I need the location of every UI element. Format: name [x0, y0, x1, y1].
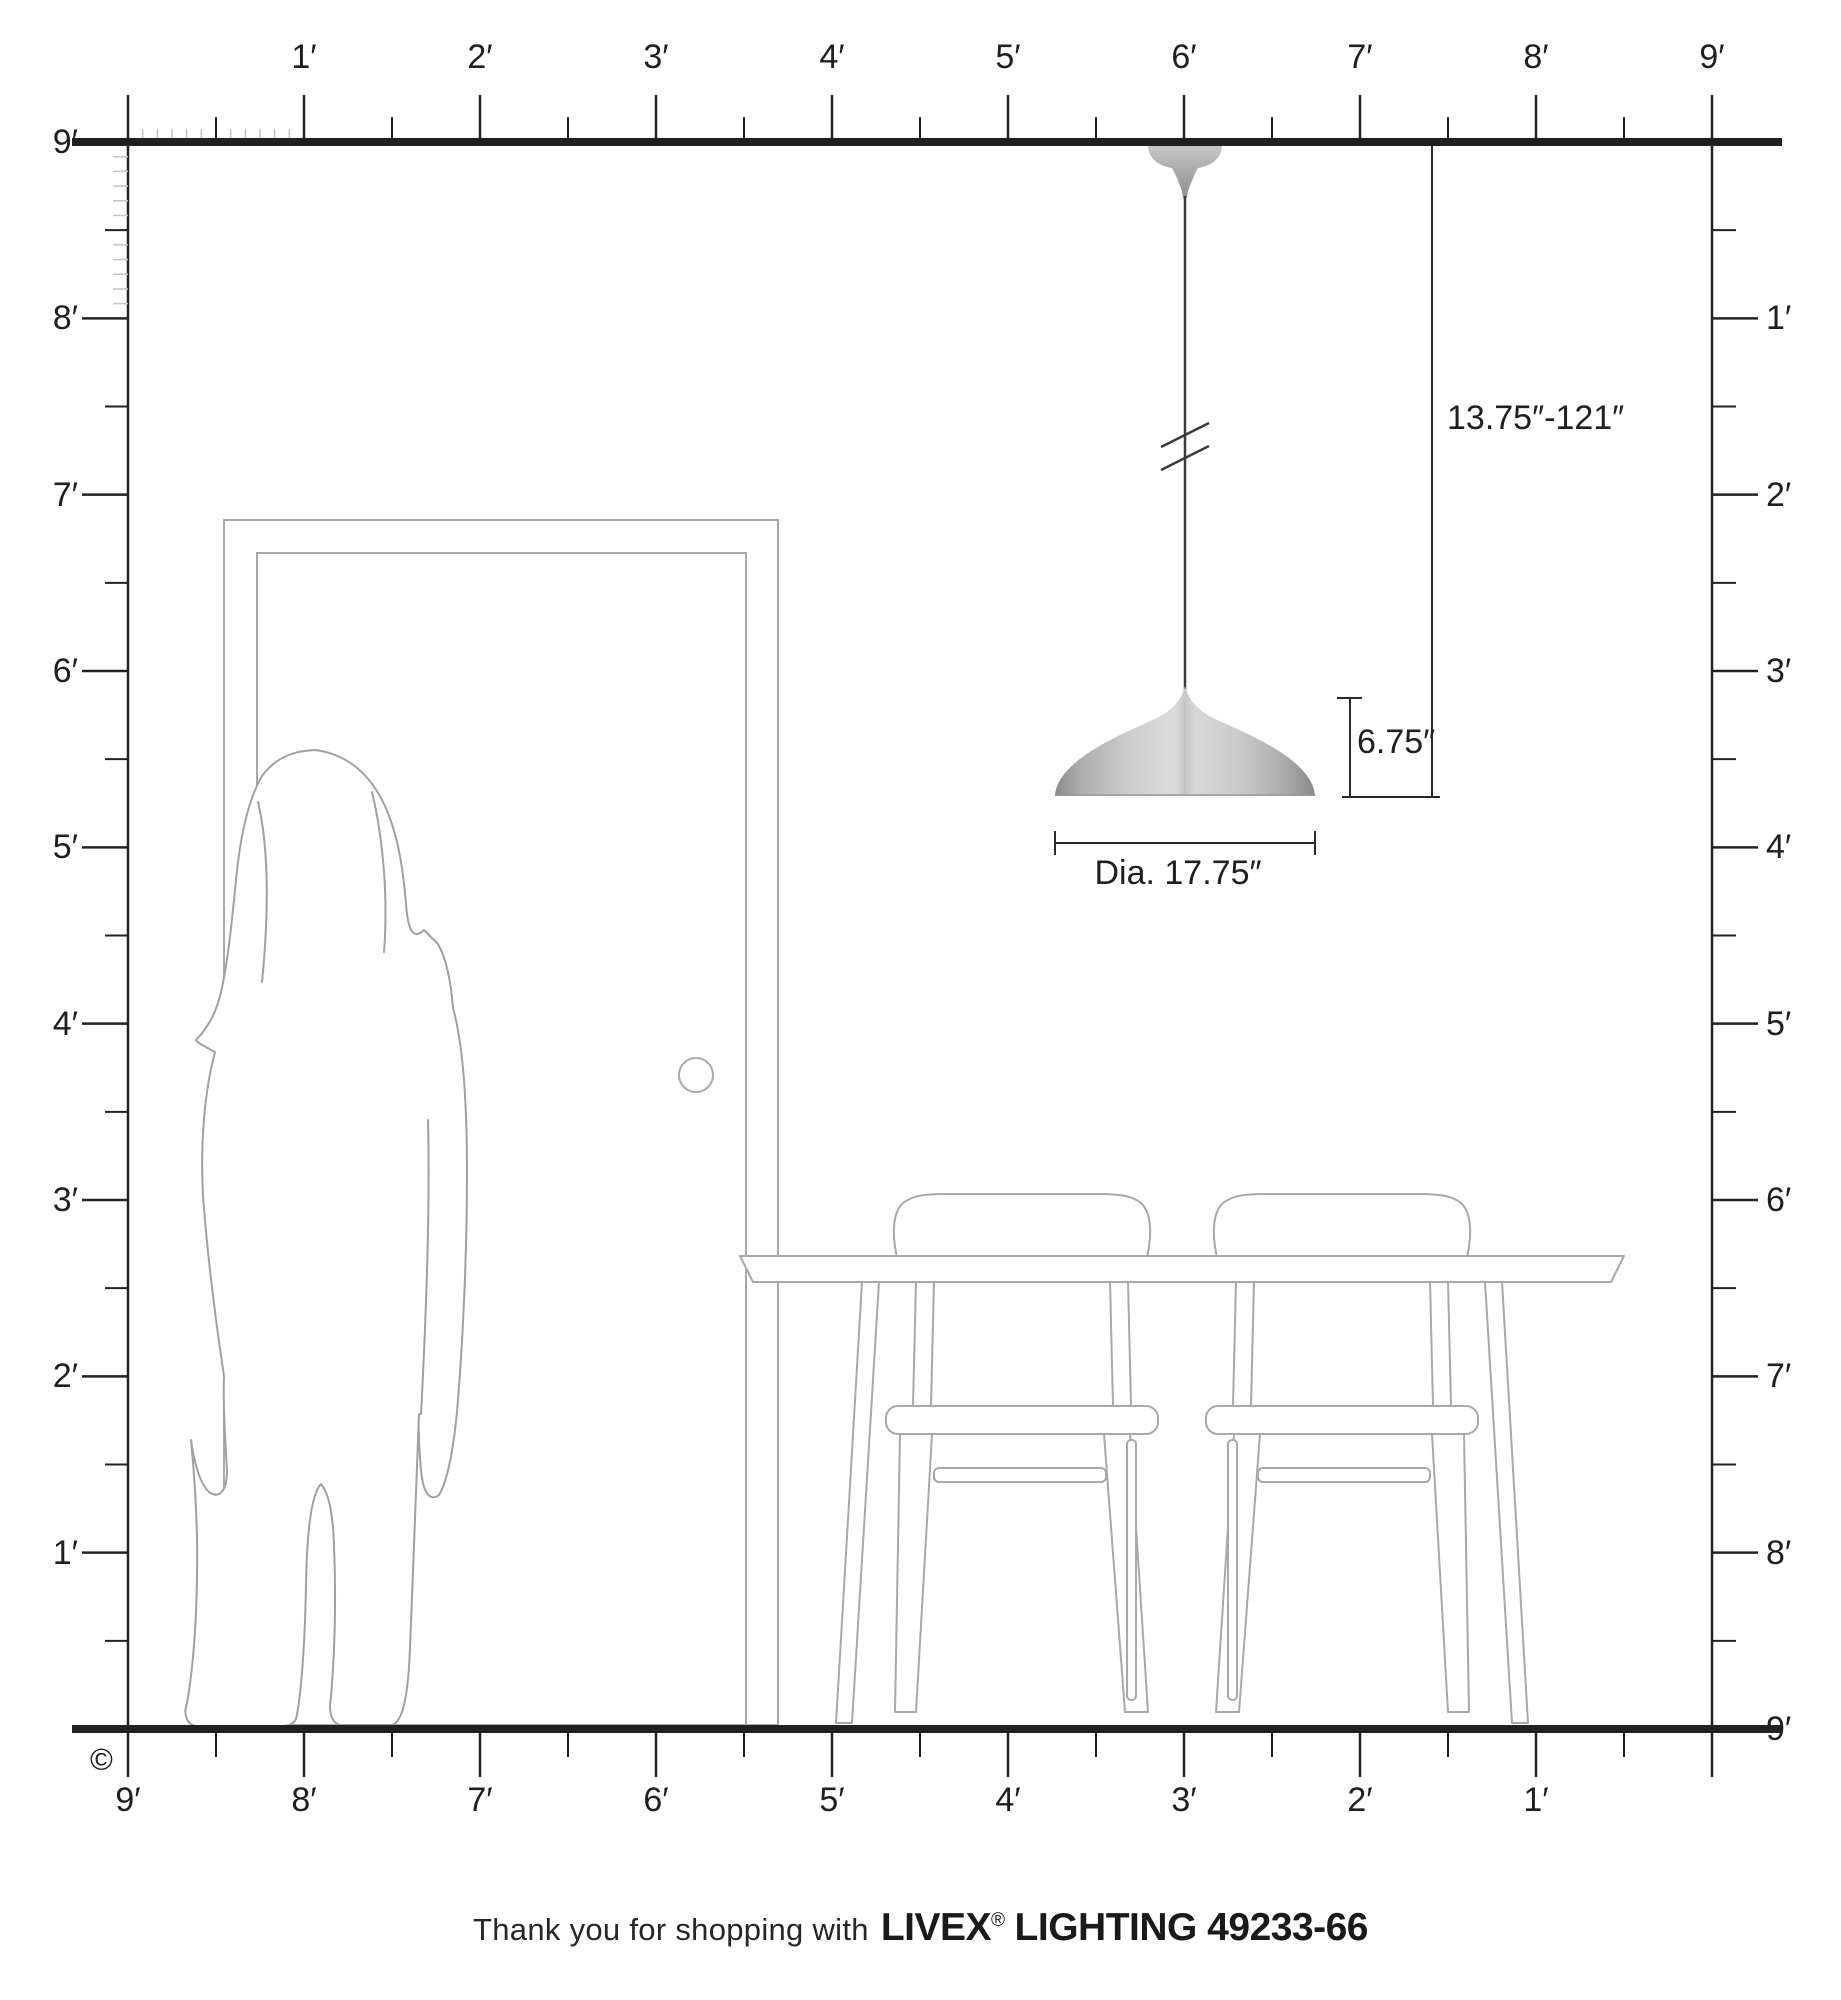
copyright-symbol: ©	[90, 1742, 113, 1778]
ruler-label-bottom: 3′	[1144, 1779, 1224, 1821]
ruler-label-right: 5′	[1766, 1003, 1826, 1045]
ruler-label-bottom: 5′	[792, 1779, 872, 1821]
ruler-label-right: 3′	[1766, 650, 1826, 692]
chair-front-leg	[895, 1434, 932, 1712]
ruler-label-left: 9′	[18, 121, 78, 163]
chair-back-post	[1110, 1281, 1131, 1406]
ruler-label-bottom: 9′	[88, 1779, 168, 1821]
ruler-label-top: 7′	[1320, 36, 1400, 78]
footer-thanks: Thank you for shopping with	[473, 1912, 869, 1947]
ruler-label-bottom: 7′	[440, 1779, 520, 1821]
pendant-light	[1055, 146, 1315, 796]
ruler-label-right: 7′	[1766, 1355, 1826, 1397]
ruler-label-bottom: 4′	[968, 1779, 1048, 1821]
ruler-label-left: 7′	[18, 474, 78, 516]
ruler-label-right: 2′	[1766, 474, 1826, 516]
ruler-label-top: 1′	[264, 36, 344, 78]
ruler-label-top: 8′	[1496, 36, 1576, 78]
hang-range-label: 13.75″-121″	[1447, 397, 1624, 439]
ruler-label-right: 1′	[1766, 297, 1826, 339]
ruler-label-top: 3′	[616, 36, 696, 78]
ruler-label-left: 5′	[18, 826, 78, 868]
ruler-label-left: 2′	[18, 1355, 78, 1397]
ruler-label-top: 6′	[1144, 36, 1224, 78]
dimension-diagram: 13.75″-121″ 6.75″ Dia. 17.75″ © Thank yo…	[0, 0, 1841, 2000]
ruler-label-left: 6′	[18, 650, 78, 692]
ruler-label-bottom: 1′	[1496, 1779, 1576, 1821]
ruler-label-top: 4′	[792, 36, 872, 78]
ruler-label-bottom: 2′	[1320, 1779, 1400, 1821]
chair-back-leg	[1127, 1440, 1136, 1700]
door-knob	[679, 1058, 713, 1092]
ceiling-line	[72, 138, 1782, 146]
registered-mark: ®	[991, 1910, 1005, 1931]
ruler-label-right: 9′	[1766, 1708, 1826, 1750]
woman-silhouette	[185, 750, 467, 1726]
footer-text: Thank you for shopping withLIVEX®LIGHTIN…	[0, 1906, 1841, 1950]
ruler-label-left: 1′	[18, 1532, 78, 1574]
table-leg	[836, 1282, 879, 1723]
footer-product: LIGHTING 49233-66	[1015, 1906, 1368, 1949]
ruler-label-left: 3′	[18, 1179, 78, 1221]
pendant-canopy	[1148, 146, 1222, 198]
ruler-label-bottom: 8′	[264, 1779, 344, 1821]
table-leg	[1485, 1282, 1528, 1723]
chair-back-post	[913, 1281, 934, 1406]
chair-backrest	[894, 1194, 1150, 1262]
scene-drawing	[0, 0, 1841, 2000]
chair-seat	[886, 1406, 1158, 1434]
ruler-label-right: 8′	[1766, 1532, 1826, 1574]
ruler-label-left: 8′	[18, 297, 78, 339]
ruler-label-left: 4′	[18, 1003, 78, 1045]
ruler-label-right: 4′	[1766, 826, 1826, 868]
ruler-label-top: 2′	[440, 36, 520, 78]
dining-table	[740, 1256, 1624, 1723]
ruler-label-top: 9′	[1672, 36, 1752, 78]
ruler-label-right: 6′	[1766, 1179, 1826, 1221]
footer-brand: LIVEX®	[881, 1906, 1005, 1949]
ruler-label-bottom: 6′	[616, 1779, 696, 1821]
floor-line	[72, 1725, 1782, 1733]
fixture-height-label: 6.75″	[1357, 721, 1435, 763]
ruler-label-top: 5′	[968, 36, 1048, 78]
diameter-label: Dia. 17.75″	[1094, 852, 1261, 894]
table-top	[740, 1256, 1624, 1282]
chair-stretcher	[934, 1468, 1106, 1482]
